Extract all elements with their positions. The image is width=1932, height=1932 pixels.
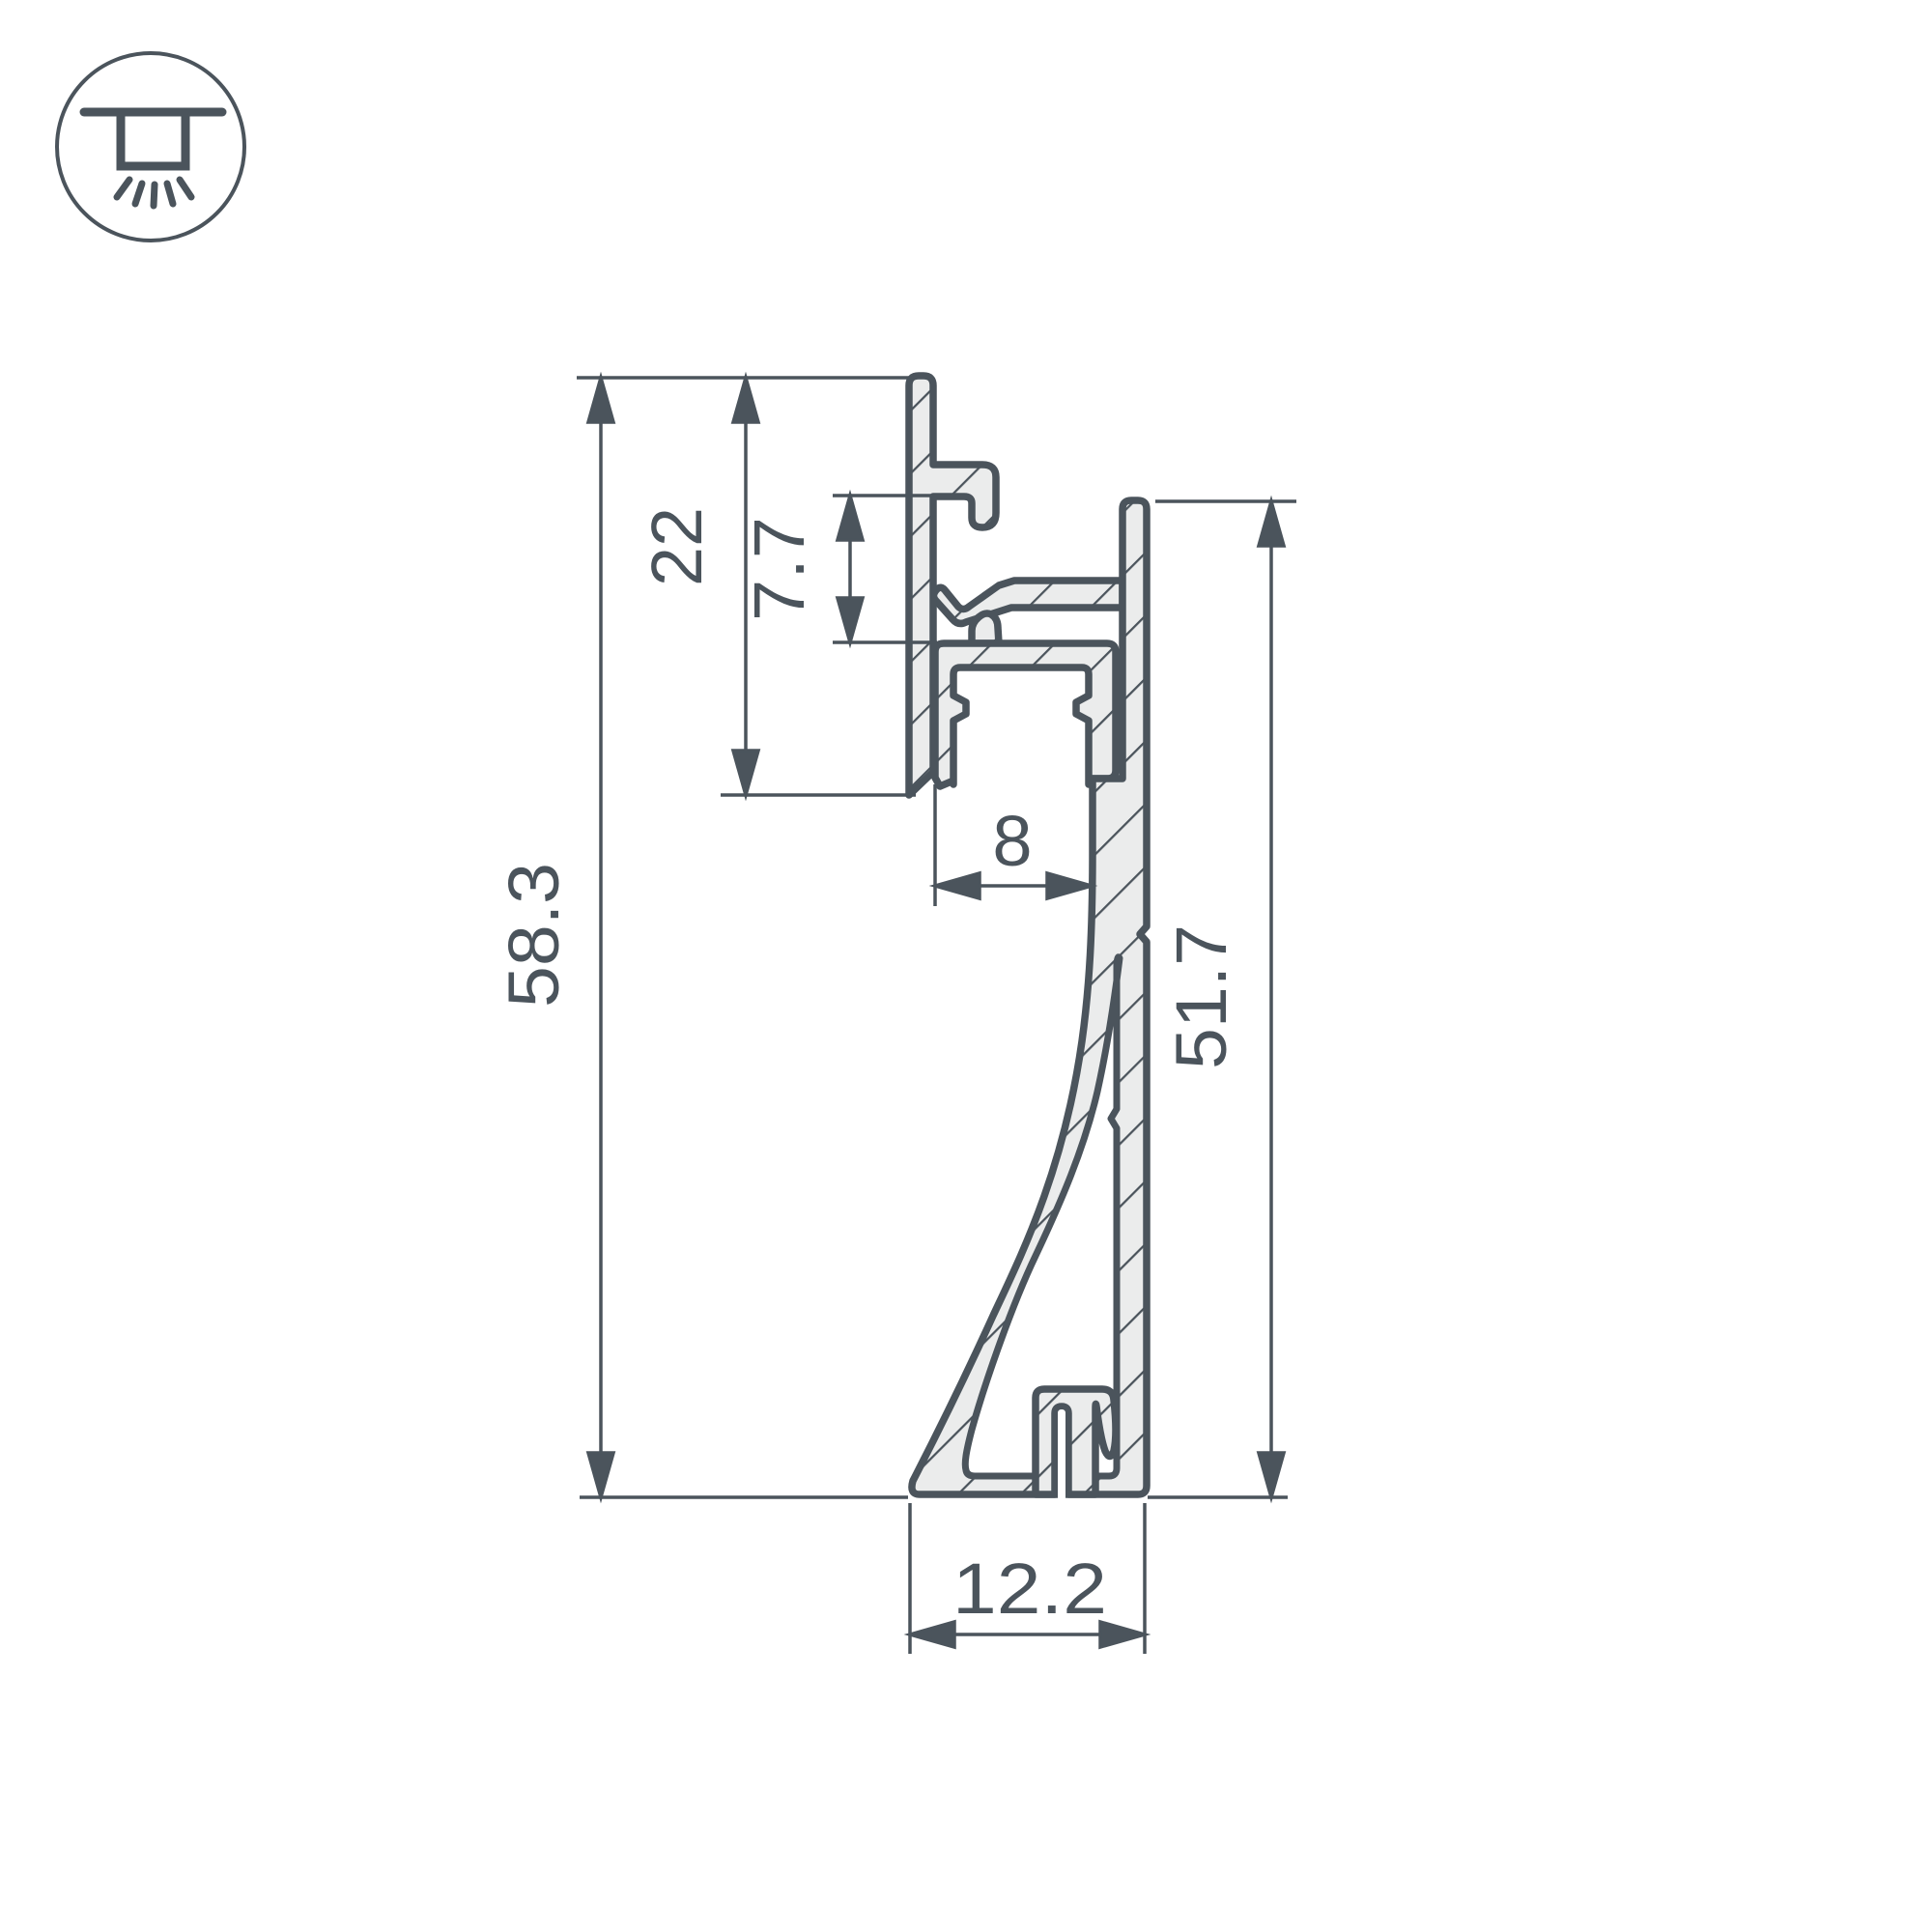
label-front-wall-height: 51.7: [1161, 924, 1241, 1069]
bottom-slot-opening: [1058, 1409, 1065, 1499]
label-overall-height: 58.3: [494, 863, 574, 1008]
led-channel-cavity: [953, 668, 1089, 784]
label-base-width: 12.2: [952, 1548, 1107, 1629]
canvas-background: [0, 0, 1932, 1932]
label-led-opening-width: 8: [992, 801, 1032, 881]
label-panel-slot-height: 7.7: [739, 517, 819, 621]
lower-clip-beak: [972, 613, 999, 643]
label-back-flange-height: 22: [637, 507, 717, 586]
profile-cross-section-drawing: 58.3 22 7.7 8 51.7 12.2: [0, 0, 1932, 1932]
